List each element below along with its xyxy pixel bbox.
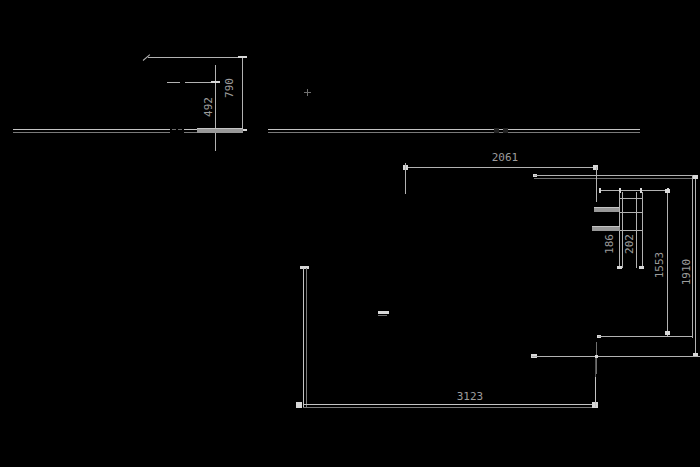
plan-inner-bottom-edge [598, 336, 693, 337]
post-rung [619, 212, 643, 213]
ground-line-dash [178, 129, 182, 130]
dim-label-1553: 1553 [654, 245, 666, 285]
rail-end [617, 266, 622, 269]
extension-line-left [405, 163, 406, 194]
ground-sill-bar [197, 128, 243, 133]
snap-dash-shadow [378, 315, 387, 316]
rail-end [639, 266, 644, 269]
ground-line-dash [172, 129, 176, 130]
plan-top-edge-shadow [534, 178, 693, 179]
plan-right-lower-edge-dim [595, 358, 596, 377]
dim-endpoint [693, 175, 698, 179]
snap-cross-icon [307, 89, 308, 96]
axis-marker [596, 342, 597, 374]
dim-label-492: 492 [203, 87, 215, 127]
elevation-mid-line-a [167, 82, 180, 83]
dim-tick [211, 81, 220, 83]
extension-line-right [596, 167, 597, 202]
snap-dash-icon [378, 311, 389, 314]
dim-tick [599, 188, 601, 193]
plan-left-edge [303, 268, 307, 407]
dim-label-3123: 3123 [450, 391, 490, 403]
dim-label-186: 186 [604, 224, 616, 264]
ground-line-segment [184, 129, 197, 133]
dim-tick [238, 56, 247, 58]
plan-top-edge [534, 175, 693, 176]
dim-label-2061: 2061 [485, 152, 525, 164]
dimension-line-2061 [405, 167, 597, 168]
dim-label-790: 790 [224, 68, 236, 108]
elevation-right-extension-line [242, 57, 243, 133]
dimension-line-3123 [303, 404, 597, 408]
plan-right-lower-edge [595, 377, 596, 407]
dimension-line-492 [215, 65, 216, 151]
elevation-top-line [148, 57, 243, 58]
drawing-canvas: 492 790 2061 186 202 1553 1910 [0, 0, 700, 467]
ground-line-right [268, 129, 640, 133]
dim-label-1910: 1910 [681, 252, 693, 292]
dim-label-202: 202 [624, 224, 636, 264]
dim-endpoint [296, 402, 302, 408]
plan-bottom-edge [532, 356, 700, 357]
beam-section-bar [594, 207, 619, 212]
dim-endpoint [665, 189, 670, 193]
dim-endpoint [665, 331, 670, 335]
dimension-line-1553 [667, 190, 668, 337]
ground-line-break [503, 128, 508, 133]
dimension-line-1910 [695, 176, 696, 357]
dimension-line-small [599, 190, 669, 191]
ground-line-break [494, 128, 499, 133]
ground-line-left [13, 129, 170, 133]
post-rung [619, 198, 643, 199]
